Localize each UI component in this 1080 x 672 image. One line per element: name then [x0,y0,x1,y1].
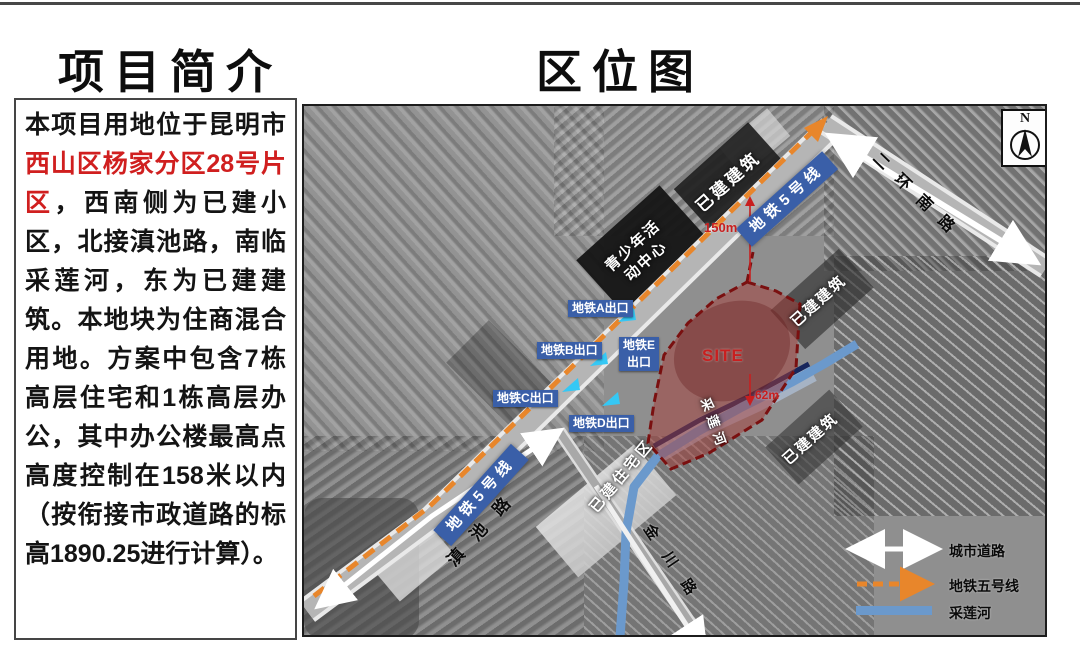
north-label: N [1020,111,1030,126]
metro-exit-d-label: 地铁D出口 [569,415,634,432]
metro-exit-a-label: 地铁A出口 [568,300,633,317]
dimension-62m-label: 62m [755,388,779,402]
description-text-cont: ，西南侧为已建小区，北接滇池路，南临采莲河，东为已建建筑。本地块为住商混合用地。… [25,189,286,568]
legend-city-road-label: 城市道路 [949,541,1005,561]
legend-metro-label: 地铁五号线 [949,576,1019,596]
project-slide: 项目简介 本项目用地位于昆明市西山区杨家分区28号片区，西南侧为已建小区，北接滇… [0,0,1080,672]
top-divider [0,2,1080,5]
location-map: 地铁5号线 地铁5号线 已建建筑 已建建筑 已建建筑 已建住宅区 青少年活 动中… [302,104,1047,637]
dimension-150m-label: 150m [704,220,737,235]
map-title: 区位图 [450,36,790,102]
description-text: 本项目用地位于昆明市 [25,111,286,139]
north-indicator: N [1001,109,1047,167]
legend-river-label: 采莲河 [949,603,991,623]
metro-exit-c-label: 地铁C出口 [493,390,558,407]
metro-exit-e-label: 地铁E 出口 [619,337,659,371]
metro-exit-b-label: 地铁B出口 [537,342,602,359]
exit-arrow-icon [602,392,620,406]
page-title-project-intro: 项目简介 [30,36,310,102]
north-compass-icon [1006,126,1044,164]
site-label: SITE [702,346,744,366]
project-description-box: 本项目用地位于昆明市西山区杨家分区28号片区，西南侧为已建小区，北接滇池路，南临… [14,98,297,640]
legend-river-symbol [856,606,932,615]
